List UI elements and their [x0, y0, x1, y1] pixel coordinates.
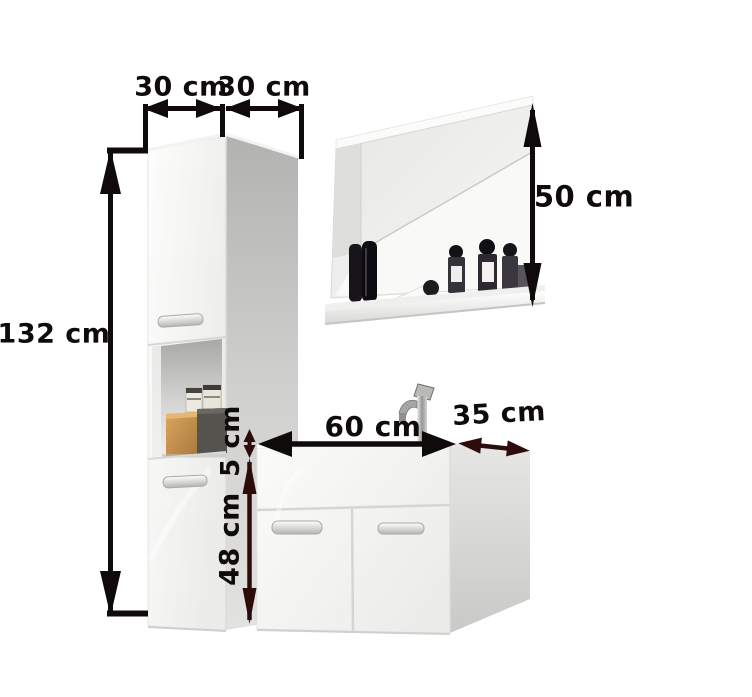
tall-cabinet-bottom-door-handle [163, 475, 208, 488]
niche-left-wall [152, 346, 161, 459]
storage-box-wooden [166, 412, 197, 457]
vanity-door-seam [352, 507, 353, 632]
vanity-side-panel [450, 443, 530, 633]
vanity-depth-label: 35 cm [452, 398, 547, 430]
product-dimension-diagram: 30 cm 30 cm 132 cm 50 cm 60 cm 35 cm 5 c… [0, 0, 752, 697]
furniture-illustration [0, 0, 752, 697]
countertop-height-label: 5 cm [218, 405, 244, 477]
mirror-height-label: 50 cm [534, 183, 634, 212]
vanity-height-label: 48 cm [217, 492, 244, 586]
wall-mirror [325, 96, 545, 325]
vanity-left-door-handle [272, 521, 322, 534]
cabinet-width-label: 30 cm [134, 74, 228, 101]
vanity-right-door-handle [378, 523, 424, 534]
vanity-width-label: 60 cm [325, 413, 422, 441]
cabinet-height-label: 132 cm [0, 321, 110, 348]
mirror-reflection-left [333, 143, 361, 258]
cabinet-depth-label: 30 cm [217, 74, 311, 101]
cabinet-height-dimension-arrow [100, 149, 148, 616]
